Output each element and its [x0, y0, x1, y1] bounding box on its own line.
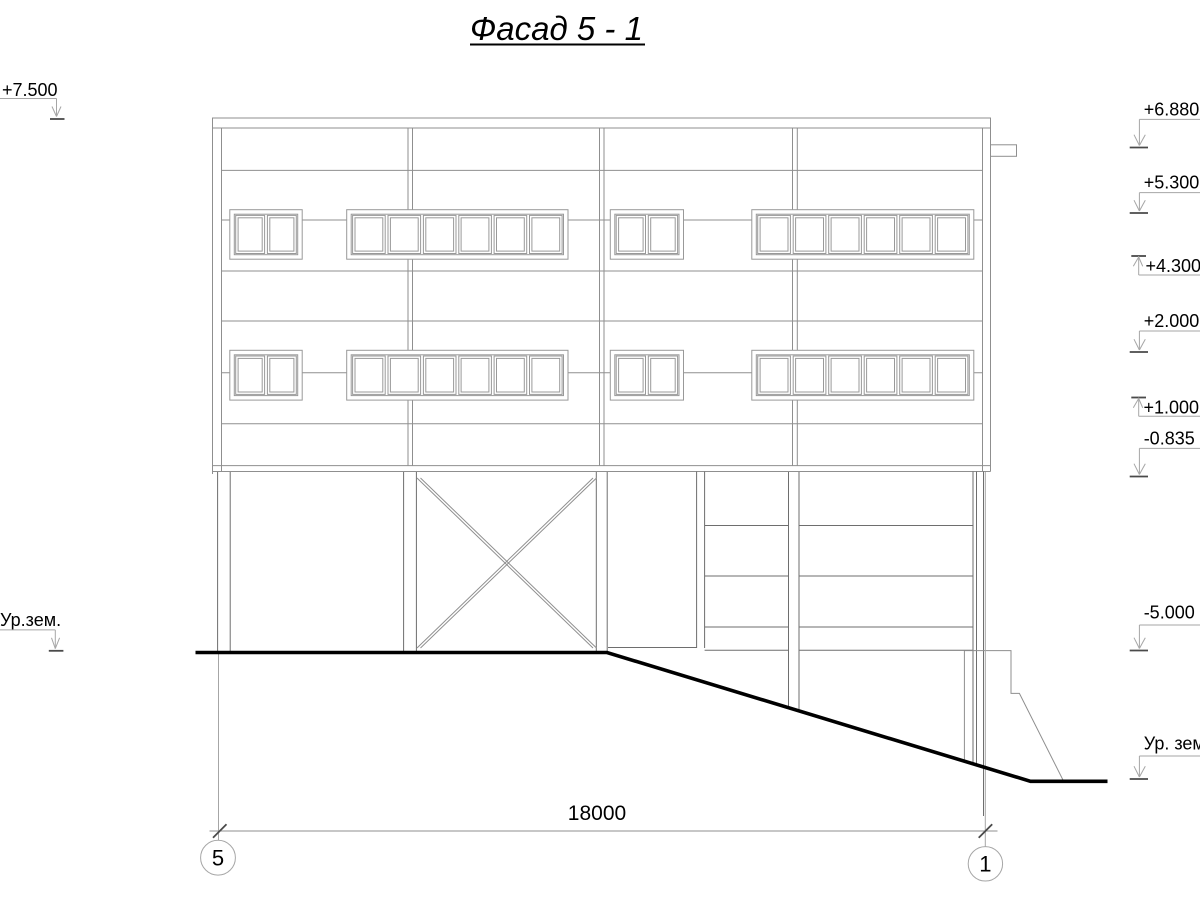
svg-text:Фасад 5 - 1: Фасад 5 - 1 — [470, 10, 643, 47]
svg-text:-5.000: -5.000 — [1144, 603, 1195, 623]
svg-text:+2.000: +2.000 — [1144, 311, 1200, 331]
svg-text:+5.300: +5.300 — [1144, 173, 1200, 193]
svg-text:5: 5 — [212, 846, 224, 871]
svg-text:+6.880: +6.880 — [1144, 99, 1200, 119]
svg-text:-0.835: -0.835 — [1144, 428, 1195, 448]
svg-text:Ур.зем.: Ур.зем. — [0, 610, 61, 630]
svg-text:Ур. земли: Ур. земли — [1144, 734, 1200, 754]
svg-text:18000: 18000 — [568, 802, 626, 825]
svg-text:1: 1 — [979, 852, 991, 877]
svg-text:+4.300: +4.300 — [1146, 256, 1200, 276]
svg-text:+1.000: +1.000 — [1144, 397, 1200, 417]
svg-text:+7.500: +7.500 — [2, 80, 58, 100]
